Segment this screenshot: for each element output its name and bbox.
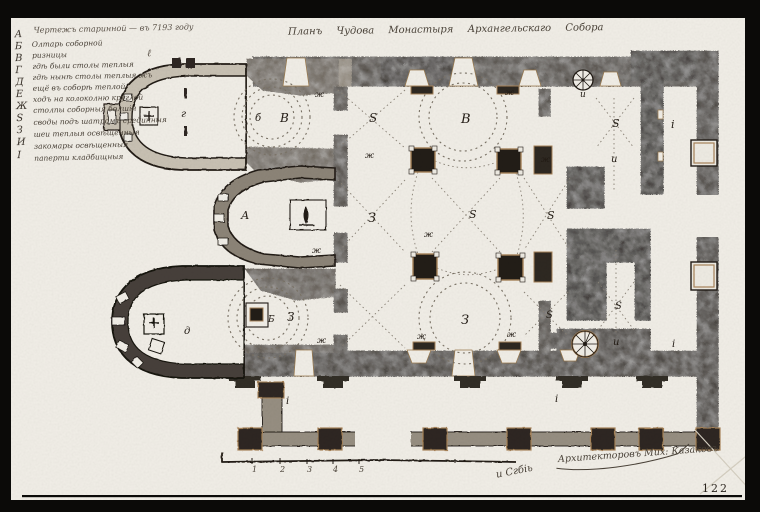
plan-drawing: 12345 Чертежъ старинной — въ 7193 году ℓ…	[0, 0, 760, 512]
sheet-border-line	[22, 495, 742, 497]
frame-top	[0, 0, 760, 18]
frame-bottom	[0, 500, 760, 512]
paper-grain	[0, 0, 760, 512]
frame-right	[745, 0, 760, 512]
frame-left	[0, 0, 11, 512]
scanned-plan-page: 12345 Чертежъ старинной — въ 7193 году ℓ…	[0, 0, 760, 512]
